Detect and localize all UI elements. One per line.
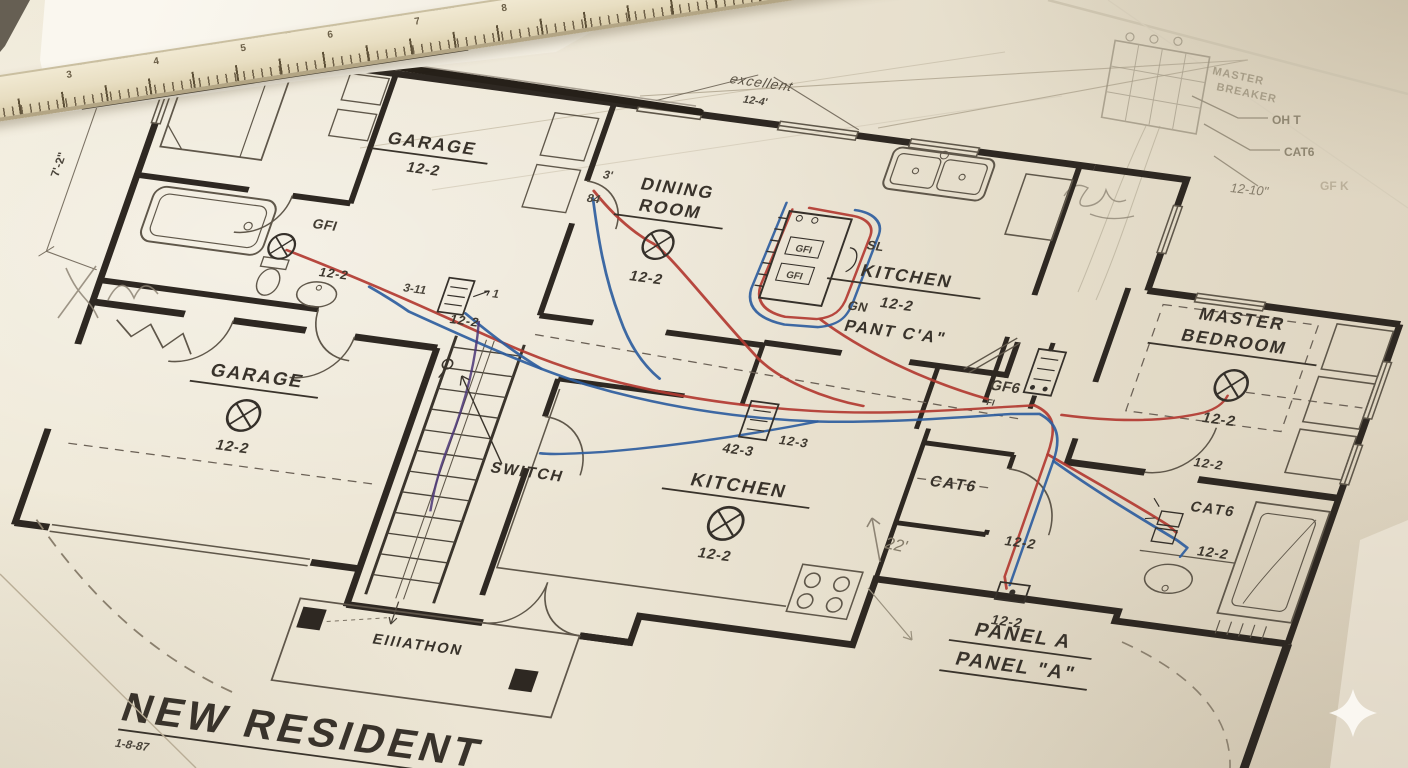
ruler-number: 4 <box>153 56 160 68</box>
stairs <box>353 335 524 629</box>
gf6-outlet-symbol <box>1024 349 1066 396</box>
gf6-label: GF6 <box>988 378 1023 397</box>
circuit-kitchen-top: 12-2 <box>878 295 916 315</box>
blueprint-drawing: MASTER BREAKER OH T CAT6 GF K 12-10" <box>0 0 1408 768</box>
ceiling-light-symbol <box>1210 368 1252 402</box>
wire-red-dining <box>534 191 924 406</box>
circuit-garage-top: 12-2 <box>404 160 442 180</box>
switch-box-symbol <box>438 278 493 318</box>
ceiling-light-symbol <box>639 229 678 261</box>
ruler-number: 8 <box>501 3 508 15</box>
porch-label: EIIIATHON <box>370 632 465 659</box>
ruler-number: 5 <box>240 43 247 55</box>
strip-sl: SL <box>865 237 887 254</box>
sheet-under-edge <box>1330 520 1408 768</box>
room-label-cat6-bath: CAT6 <box>1188 499 1238 520</box>
circuit-bath-left: 12-2 <box>317 264 351 282</box>
outlet-123-label: 12-3 <box>777 432 811 450</box>
dining-switch-top: 3' <box>601 168 615 183</box>
wire-blue-main <box>298 287 1081 585</box>
underlay-leader-oht: OH T <box>1272 113 1301 127</box>
porch-post <box>508 668 539 692</box>
room-label-kitchen-bottom: KITCHEN <box>688 469 790 502</box>
ruler-number: 7 <box>414 16 421 28</box>
strip-gfi-a: GFI <box>794 244 814 257</box>
room-label-cat6-closet: CAT6 <box>927 473 980 495</box>
floor-plan: GARAGE 12-2 DINING ROOM 12-2 3' 84 GFI 1… <box>0 0 1408 768</box>
underlay-leader-gfk: GF K <box>1320 179 1349 193</box>
fridge-symbol <box>1005 174 1073 240</box>
room-label-kitchen-top: KITCHEN <box>858 260 956 291</box>
room-label-garage-left: GARAGE <box>208 359 308 391</box>
sw-group-left: 3-11 <box>401 281 429 297</box>
circuit-master-wall: 12-2 <box>1192 455 1226 473</box>
ceiling-light-symbol <box>223 398 265 432</box>
underlay-breaker-panel <box>1102 27 1213 134</box>
photo-extras: 22' <box>0 57 1408 768</box>
underlay-dim-12-10: 12-10" <box>1230 180 1271 199</box>
dining-switch-bottom: 84 <box>585 191 603 206</box>
circuit-dining: 12-2 <box>627 269 665 289</box>
switch-leader <box>434 376 530 464</box>
panel-label-2: PANEL "A" <box>952 648 1078 685</box>
underlay-breaker-label-2: BREAKER <box>1215 81 1278 106</box>
panel-label-1: PANEL A <box>972 619 1076 653</box>
pencil-scribble-topright <box>1064 185 1134 218</box>
circuit-cat6-closet: 12-2 <box>1003 533 1039 552</box>
bathtub-symbol <box>138 185 279 256</box>
circuit-kitchen-bottom: 12-2 <box>695 545 733 565</box>
toilet-symbol <box>251 257 289 297</box>
ruler-number: 6 <box>327 29 334 41</box>
wire-blue-bath <box>1027 461 1211 557</box>
strip-gn: GN <box>846 298 871 315</box>
wire-red-riser <box>972 405 1070 588</box>
ceiling-light-symbol <box>704 505 748 541</box>
outlet-423-label: 42-3 <box>720 440 756 459</box>
porch-post <box>296 607 327 631</box>
ruler-number: 9 <box>588 0 595 1</box>
blueprint-photo: MASTER BREAKER OH T CAT6 GF K 12-10" <box>0 0 1408 768</box>
sheet-bottom-title: NEW RESIDENT <box>116 683 491 768</box>
sw-group-circuit: 12-2 <box>448 311 482 329</box>
strip-gfi-b: GFI <box>784 270 804 283</box>
underlay-leader-cat6: CAT6 <box>1284 145 1315 159</box>
circuit-master: 12-2 <box>1200 410 1238 430</box>
gfi-label: GFI <box>311 215 340 233</box>
dim-left-value: 7'-2" <box>47 151 69 177</box>
patio-dashed-arc <box>1122 642 1230 768</box>
dim-top-value: 12-4' <box>741 94 769 109</box>
sheet-border-line <box>0 574 196 768</box>
sw-group-right: 1 <box>490 287 502 301</box>
plan-labels: GARAGE 12-2 DINING ROOM 12-2 3' 84 GFI 1… <box>0 0 1389 768</box>
stove-symbol <box>786 564 863 619</box>
circuit-garage-left: 12-2 <box>213 438 251 458</box>
ruler-number: 3 <box>66 69 73 81</box>
break-line <box>108 320 199 355</box>
wire-red-master <box>1061 375 1227 435</box>
ceiling-light-symbol <box>265 232 299 260</box>
sheet-bottom-date: 1-8-87 <box>113 736 152 754</box>
plugmold-strip-symbol <box>751 210 870 308</box>
